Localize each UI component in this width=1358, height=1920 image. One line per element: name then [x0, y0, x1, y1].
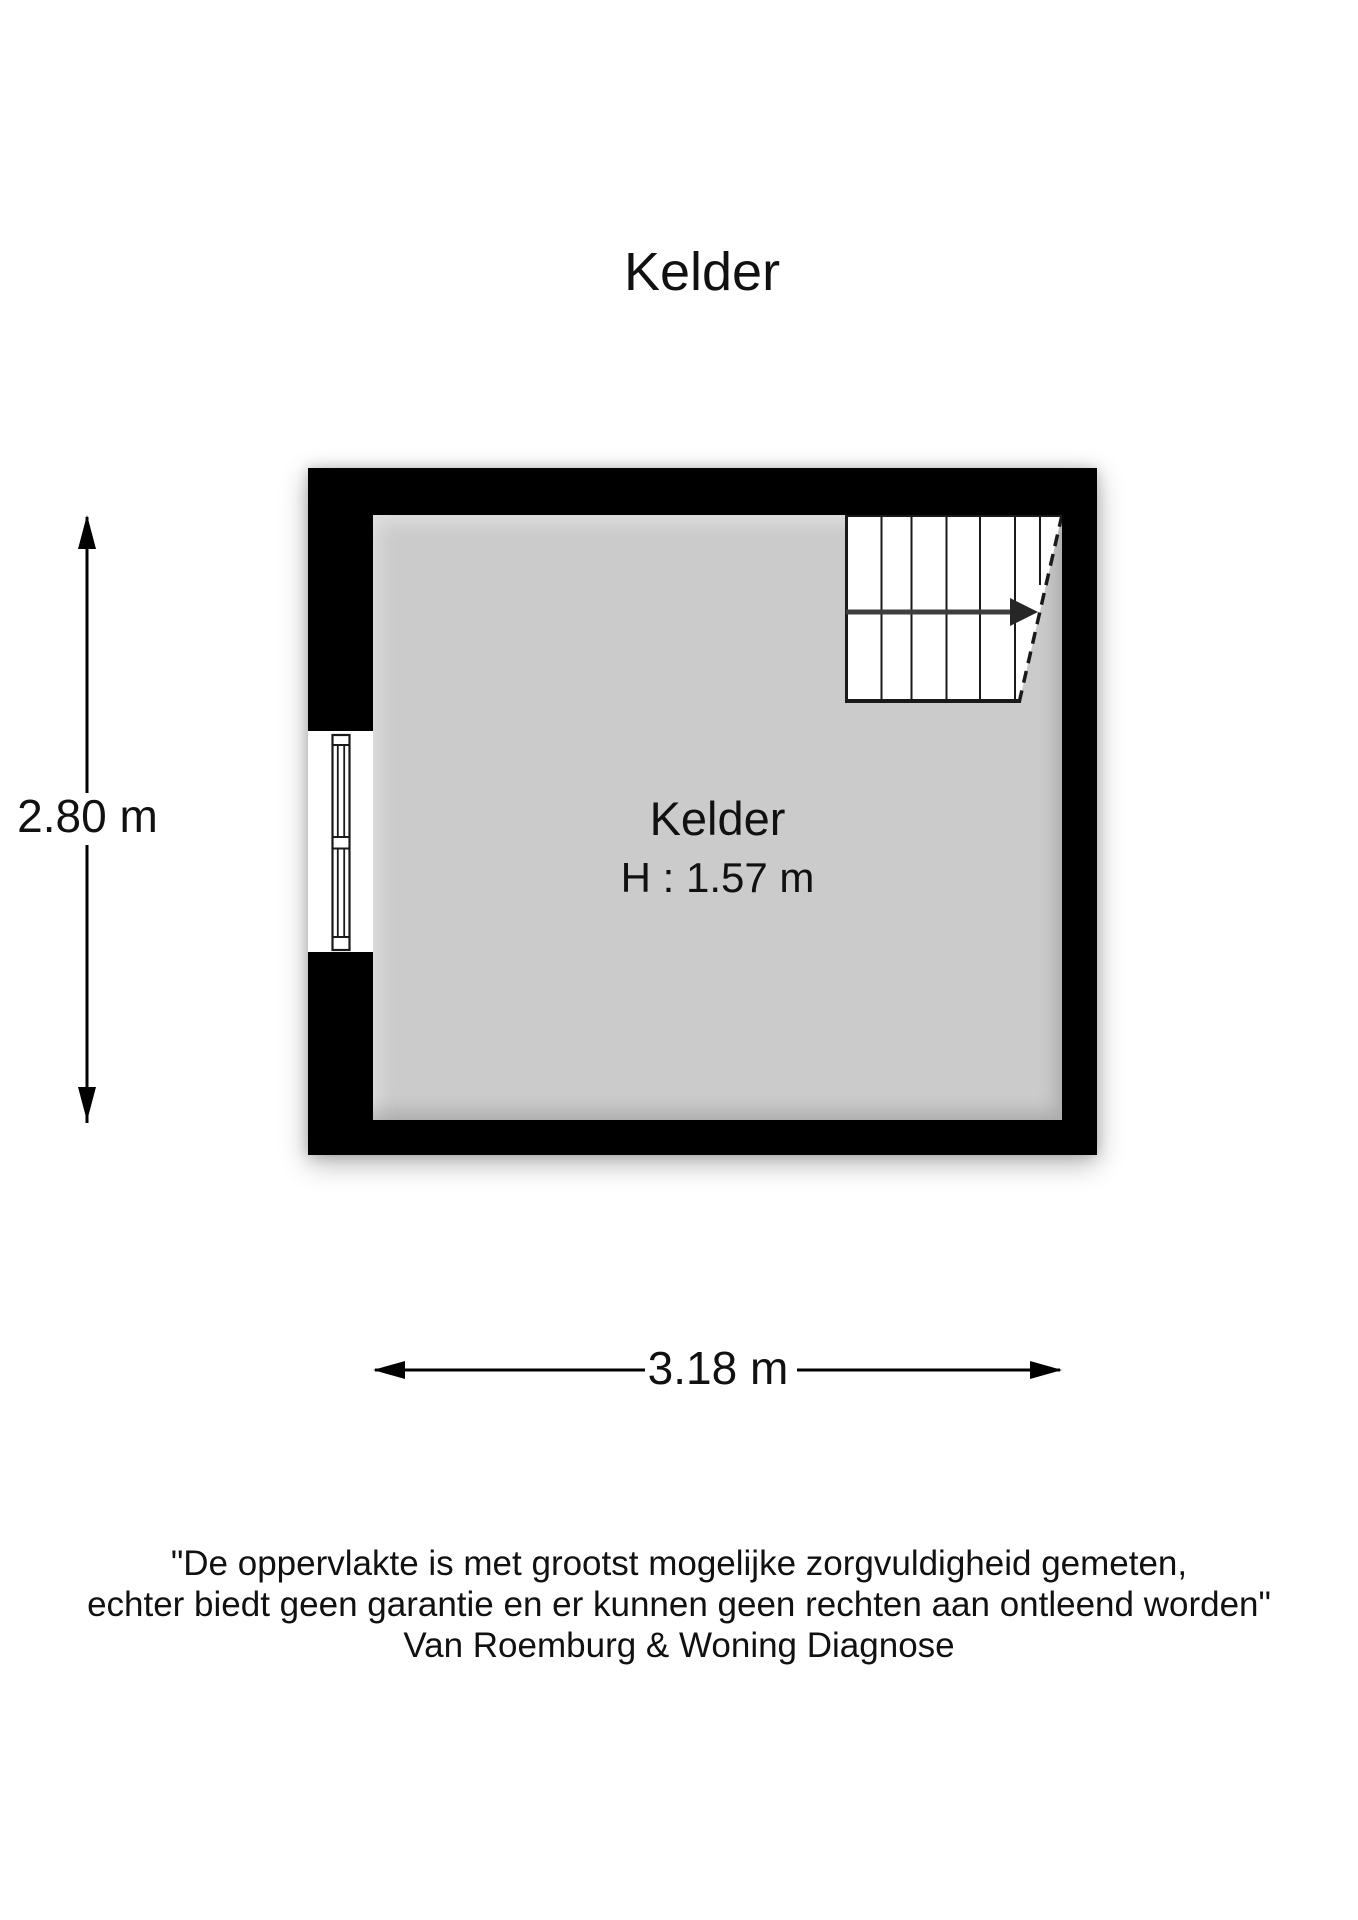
window: [308, 731, 373, 952]
disclaimer: "De oppervlakte is met grootst mogelijke…: [0, 1543, 1358, 1666]
disclaimer-line-1: "De oppervlakte is met grootst mogelijke…: [0, 1543, 1358, 1584]
horizontal-dimension-label: 3.18 m: [630, 1345, 806, 1391]
room-label: Kelder: [373, 795, 1062, 842]
staircase-drawing: [845, 515, 1062, 703]
disclaimer-line-3: Van Roemburg & Woning Diagnose: [0, 1625, 1358, 1666]
page-title: Kelder: [352, 243, 1052, 302]
room-height-label: H : 1.57 m: [373, 857, 1062, 899]
floorplan-page: Kelder Kelder H : 1.57 m: [0, 0, 1358, 1920]
staircase: [845, 515, 1062, 703]
disclaimer-line-2: echter biedt geen garantie en er kunnen …: [0, 1584, 1358, 1625]
window-symbol-icon: [308, 731, 373, 952]
floor-plan: Kelder H : 1.57 m: [308, 468, 1097, 1155]
vertical-dimension-label: 2.80 m: [0, 793, 175, 839]
